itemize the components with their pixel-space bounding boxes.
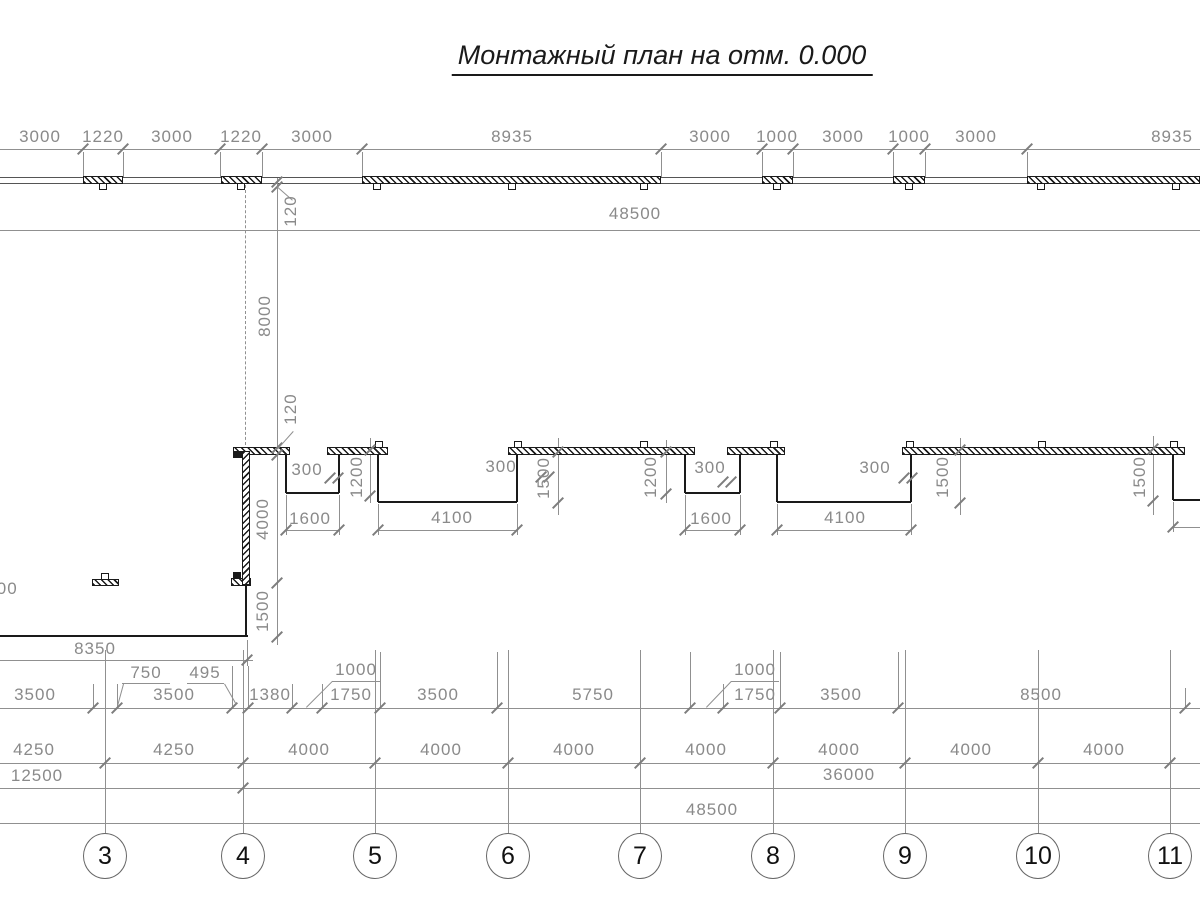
extension-line [640,650,641,833]
plate-anchor-tab [1038,441,1046,448]
dimension-label: 4100 [431,508,473,528]
dimension-label: 3500 [417,685,459,705]
dimension-line [777,530,911,531]
extension-line [362,152,363,177]
dimension-label: 4250 [13,740,55,760]
grid-bubble-7: 7 [618,833,662,879]
grid-bubble-6: 6 [486,833,530,879]
dimension-label: 4000 [1083,740,1125,760]
dimension-label: 1600 [690,509,732,529]
dimension-label: 1750 [734,685,776,705]
plate-anchor-tab [375,441,383,448]
extension-line [105,650,106,833]
dimension-label: 1000 [756,127,798,147]
leader-line [224,684,237,705]
plate-anchor-tab [514,441,522,448]
dimension-label: 12500 [11,766,63,786]
wall-line [378,501,517,503]
precast-plate [902,447,1185,455]
extension-line [1027,152,1028,177]
dimension-label: 1220 [82,127,124,147]
wall-line [684,454,686,493]
dimension-label: 1200 [641,456,661,498]
dimension-label: 4000 [288,740,330,760]
dimension-label: 1000 [335,660,377,680]
plate-anchor-tab [1170,441,1178,448]
wall-line [245,586,247,636]
dimension-label: 300 [485,457,516,477]
dimension-label: 8935 [491,127,533,147]
dimension-line [0,230,1200,231]
dimension-label: 300 [694,458,725,478]
extension-line [508,650,509,833]
extension-line [497,652,498,708]
grid-bubble-5: 5 [353,833,397,879]
dimension-label: 4000 [553,740,595,760]
dimension-label: 300 [859,458,890,478]
plate-anchor-tab [905,183,913,190]
wall-line [739,454,741,493]
wall-line [0,635,248,637]
wall-corner [233,451,243,458]
dimension-label: 1000 [888,127,930,147]
extension-line [925,152,926,177]
extension-line [793,152,794,177]
dimension-label: 4000 [818,740,860,760]
dimension-label: 5750 [572,685,614,705]
extension-line [905,650,906,833]
grid-bubble-10: 10 [1016,833,1060,879]
grid-bubble-8: 8 [751,833,795,879]
dimension-label: 300 [0,579,18,599]
dimension-label: 1500 [1130,456,1150,498]
dimension-label: 3500 [820,685,862,705]
dimension-label: 8350 [74,639,116,659]
dimension-label: 1200 [347,456,367,498]
plate-anchor-tab [508,183,516,190]
dimension-label: 750 [130,663,161,683]
plate-anchor-tab [1172,183,1180,190]
dimension-label: 3000 [19,127,61,147]
dimension-label: 3000 [822,127,864,147]
dimension-line [0,788,1200,789]
dimension-label: 3000 [151,127,193,147]
extension-line [123,152,124,177]
extension-line [380,652,381,708]
drawing-canvas: Монтажный план на отм. 0.000 30001220300… [0,0,1200,900]
dimension-label: 120 [281,195,301,226]
plate-anchor-tab [770,441,778,448]
wall-line [777,501,911,503]
dimension-label: 4100 [824,508,866,528]
dimension-line [685,530,740,531]
drawing-title: Монтажный план на отм. 0.000 [452,40,873,76]
dimension-label: 1750 [330,685,372,705]
dimension-label: 8000 [255,295,275,337]
hatched-wall [242,451,250,585]
dimension-label: 4000 [950,740,992,760]
extension-line [243,650,244,833]
wall-line [286,492,339,494]
dimension-line [378,530,517,531]
dimension-label: 3500 [153,685,195,705]
dimension-label: 1000 [734,660,776,680]
plate-anchor-tab [101,573,109,580]
dimension-label: 1600 [289,509,331,529]
precast-plate [727,447,785,455]
dimension-label: 495 [189,663,220,683]
wall-line [776,454,778,502]
dimension-line [332,681,380,682]
extension-line [1038,650,1039,833]
dimension-label: 300 [291,460,322,480]
dimension-label: 8500 [1020,685,1062,705]
grid-bubble-11: 11 [1148,833,1192,879]
dimension-line [1173,527,1200,528]
dimension-line [0,708,1200,709]
dimension-label: 4250 [153,740,195,760]
dimension-label: 48500 [609,204,661,224]
plate-anchor-tab [640,441,648,448]
wall-line [1172,454,1174,500]
dimension-label: 1220 [220,127,262,147]
extension-line [661,152,662,177]
precast-plate [327,447,388,455]
extension-line [898,652,899,708]
dimension-label: 1380 [249,685,291,705]
dimension-line [0,763,1200,764]
extension-line [277,178,278,645]
dimension-line [0,660,253,661]
dimension-label: 48500 [686,800,738,820]
wall-line [1173,499,1200,501]
extension-line [232,666,233,708]
dimension-label: 1500 [253,590,273,632]
wall-line [285,454,287,493]
grid-bubble-3: 3 [83,833,127,879]
wall-line [377,454,379,502]
extension-line [220,152,221,177]
dimension-label: 120 [281,393,301,424]
extension-line [1170,650,1171,833]
dimension-label: 3000 [291,127,333,147]
extension-line [762,152,763,177]
precast-plate [92,579,119,586]
extension-line [247,640,248,666]
dimension-line [286,530,339,531]
dimension-label: 3000 [955,127,997,147]
leader-line [306,681,333,708]
extension-line [893,152,894,177]
extension-line [262,152,263,177]
axis-dashed-line [245,185,246,450]
plate-anchor-tab [237,183,245,190]
dimension-label: 4000 [685,740,727,760]
dimension-line [0,823,1200,824]
plate-anchor-tab [773,183,781,190]
extension-line [690,652,691,708]
plate-anchor-tab [640,183,648,190]
dimension-label: 1500 [534,457,554,499]
grid-bubble-4: 4 [221,833,265,879]
plate-anchor-tab [906,441,914,448]
extension-line [780,652,781,708]
dimension-label: 4000 [253,498,273,540]
dimension-label: 8935 [1151,127,1193,147]
plate-anchor-tab [373,183,381,190]
dimension-label: 36000 [823,765,875,785]
dimension-label: 3000 [689,127,731,147]
plate-anchor-tab [99,183,107,190]
dimension-label: 3500 [14,685,56,705]
wall-line [685,492,740,494]
dimension-label: 4000 [420,740,462,760]
dimension-label: 1500 [933,456,953,498]
plate-anchor-tab [1037,183,1045,190]
wall-corner [233,572,241,579]
dimension-line [0,149,1200,150]
grid-bubble-9: 9 [883,833,927,879]
extension-line [83,152,84,177]
